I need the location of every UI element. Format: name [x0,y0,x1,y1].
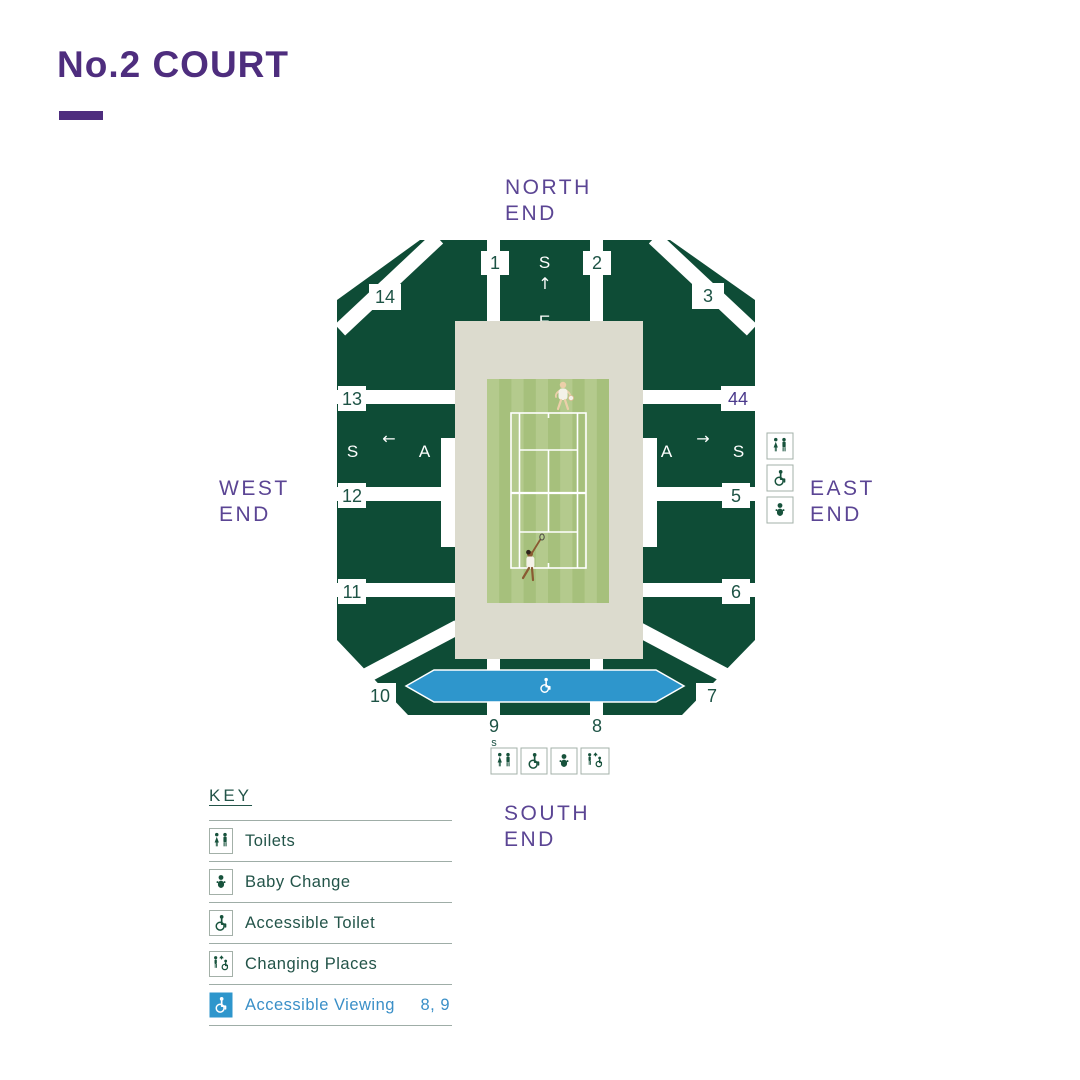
section-11-label: 11 [343,582,362,602]
section-7-label: 7 [707,686,717,706]
map-key: KEY Toilets Baby Change [209,786,452,1026]
accessible-toilet-icon [521,748,547,774]
section-13-label: 13 [342,389,362,409]
accessible-viewing-icon [209,992,233,1018]
north-up-arrow-icon: ↑ [538,274,551,293]
baby-change-icon [209,869,233,895]
key-label: Accessible Toilet [245,914,375,933]
key-label: Baby Change [245,873,351,892]
baby-change-icon [767,497,793,523]
key-row-accessible-toilet: Accessible Toilet [209,903,452,944]
east-stand-letter-a: A [661,442,673,461]
page: No.2 COURT NORTH END WEST END EAST END S… [0,0,1080,1080]
west-stand-letter-a: A [419,442,431,461]
section-8-label: 8 [592,716,602,736]
section-12-label: 12 [342,486,362,506]
title-underline-dash [59,111,103,120]
west-end-label: WEST END [219,476,290,528]
south-end-label: SOUTH END [504,801,590,853]
key-row-baby-change: Baby Change [209,862,452,903]
accessible-viewing-band [406,670,684,702]
toilets-icon [491,748,517,774]
key-label: Accessible Viewing [245,996,395,1015]
tennis-court [487,379,609,603]
toilets-icon [767,433,793,459]
section-14-label: 14 [375,287,395,307]
east-end-label: EAST END [810,476,875,528]
north-stand-letter-s: S [539,253,551,272]
page-title: No.2 COURT [57,44,289,86]
section-44-label: 44 [728,389,748,409]
key-label: Toilets [245,832,295,851]
accessible-viewing-sections: 8, 9 [420,996,450,1015]
key-label: Changing Places [245,955,377,974]
section-5-label: 5 [731,486,741,506]
changing-places-icon [581,748,609,774]
section-10-label: 10 [370,686,390,706]
south-facility-icons [491,748,609,774]
key-title: KEY [209,786,452,806]
east-arrow-icon: → [696,429,709,448]
section-6-label: 6 [731,582,741,602]
section-9-label: 9 [489,716,499,736]
changing-places-icon [209,951,233,977]
accessible-toilet-icon [767,465,793,491]
east-stand-letter-s: S [733,442,745,461]
stadium-map: S ↑ E S ← A A → S [310,165,810,785]
section-1-label: 1 [490,253,500,273]
accessible-toilet-icon [209,910,233,936]
section-2-label: 2 [592,253,602,273]
west-stand-letter-s: S [347,442,359,461]
key-row-toilets: Toilets [209,821,452,862]
baby-change-icon [551,748,577,774]
stairs-marker: s [491,737,497,749]
toilets-icon [209,828,233,854]
east-facility-icons [767,433,793,523]
section-3-label: 3 [703,286,713,306]
west-arrow-icon: ← [382,429,395,448]
key-row-changing-places: Changing Places [209,944,452,985]
key-row-accessible-viewing: Accessible Viewing 8, 9 [209,985,452,1026]
